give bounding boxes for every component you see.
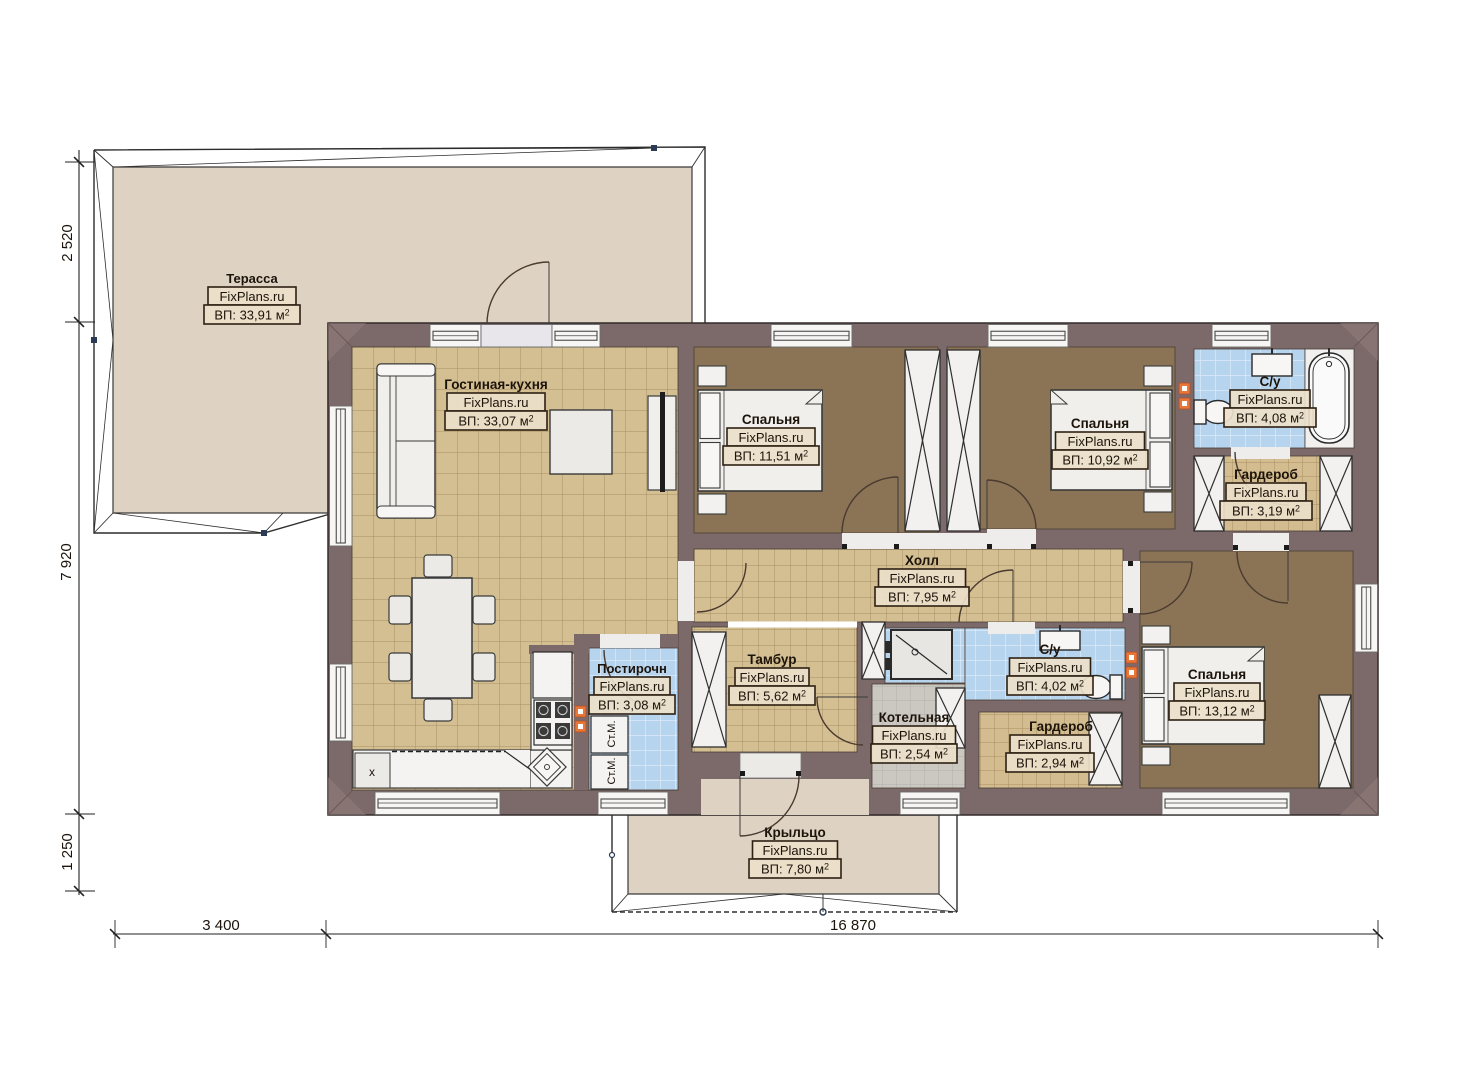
svg-text:ВП: 7,95 м2: ВП: 7,95 м2 bbox=[888, 590, 956, 605]
svg-text:Спальня: Спальня bbox=[742, 412, 800, 427]
svg-text:16 870: 16 870 bbox=[830, 917, 876, 934]
svg-text:ВП: 2,54 м2: ВП: 2,54 м2 bbox=[880, 747, 948, 762]
svg-text:ВП: 3,08 м2: ВП: 3,08 м2 bbox=[598, 698, 666, 713]
svg-text:FixPlans.ru: FixPlans.ru bbox=[599, 679, 664, 694]
svg-text:x: x bbox=[369, 765, 375, 779]
svg-text:FixPlans.ru: FixPlans.ru bbox=[1233, 485, 1298, 500]
svg-text:ВП: 5,62 м2: ВП: 5,62 м2 bbox=[738, 689, 806, 704]
svg-text:FixPlans.ru: FixPlans.ru bbox=[1017, 737, 1082, 752]
svg-text:ВП: 4,08 м2: ВП: 4,08 м2 bbox=[1236, 411, 1304, 426]
svg-text:FixPlans.ru: FixPlans.ru bbox=[1067, 434, 1132, 449]
svg-text:Гардероб: Гардероб bbox=[1234, 467, 1298, 482]
svg-text:1 250: 1 250 bbox=[59, 833, 76, 871]
svg-text:7 920: 7 920 bbox=[58, 543, 75, 581]
svg-text:Ст.М.: Ст.М. bbox=[606, 720, 618, 747]
svg-text:FixPlans.ru: FixPlans.ru bbox=[738, 430, 803, 445]
svg-text:Гардероб: Гардероб bbox=[1029, 719, 1093, 734]
svg-text:Постирочн: Постирочн bbox=[597, 661, 667, 676]
svg-text:FixPlans.ru: FixPlans.ru bbox=[739, 670, 804, 685]
svg-text:Ст.М.: Ст.М. bbox=[606, 757, 618, 784]
svg-text:С/у: С/у bbox=[1259, 374, 1281, 389]
svg-text:2 520: 2 520 bbox=[59, 224, 76, 262]
svg-text:ВП: 3,19 м2: ВП: 3,19 м2 bbox=[1232, 504, 1300, 519]
svg-text:Гостиная-кухня: Гостиная-кухня bbox=[444, 377, 547, 392]
svg-text:FixPlans.ru: FixPlans.ru bbox=[219, 289, 284, 304]
svg-text:FixPlans.ru: FixPlans.ru bbox=[881, 728, 946, 743]
svg-text:Терасса: Терасса bbox=[226, 271, 278, 286]
svg-text:ВП: 13,12 м2: ВП: 13,12 м2 bbox=[1179, 704, 1254, 719]
svg-text:ВП: 7,80 м2: ВП: 7,80 м2 bbox=[761, 862, 829, 877]
svg-text:FixPlans.ru: FixPlans.ru bbox=[1184, 685, 1249, 700]
svg-text:FixPlans.ru: FixPlans.ru bbox=[1017, 660, 1082, 675]
svg-text:ВП: 4,02 м2: ВП: 4,02 м2 bbox=[1016, 679, 1084, 694]
svg-text:Котельная: Котельная bbox=[879, 710, 950, 725]
svg-text:ВП: 10,92 м2: ВП: 10,92 м2 bbox=[1062, 453, 1137, 468]
svg-text:Крыльцо: Крыльцо bbox=[764, 825, 825, 840]
svg-text:Спальня: Спальня bbox=[1071, 416, 1129, 431]
svg-text:ВП: 11,51 м2: ВП: 11,51 м2 bbox=[734, 449, 808, 464]
svg-text:FixPlans.ru: FixPlans.ru bbox=[762, 843, 827, 858]
svg-text:FixPlans.ru: FixPlans.ru bbox=[1237, 392, 1302, 407]
svg-text:Спальня: Спальня bbox=[1188, 667, 1246, 682]
svg-text:FixPlans.ru: FixPlans.ru bbox=[889, 571, 954, 586]
svg-text:ВП: 33,07 м2: ВП: 33,07 м2 bbox=[458, 414, 533, 429]
svg-text:ВП: 33,91 м2: ВП: 33,91 м2 bbox=[214, 308, 289, 323]
svg-text:3 400: 3 400 bbox=[202, 917, 240, 934]
svg-text:ВП: 2,94 м2: ВП: 2,94 м2 bbox=[1016, 756, 1084, 771]
svg-text:Холл: Холл bbox=[905, 553, 939, 568]
svg-text:FixPlans.ru: FixPlans.ru bbox=[463, 395, 528, 410]
svg-text:С/у: С/у bbox=[1039, 642, 1061, 657]
svg-text:Тамбур: Тамбур bbox=[748, 652, 797, 667]
